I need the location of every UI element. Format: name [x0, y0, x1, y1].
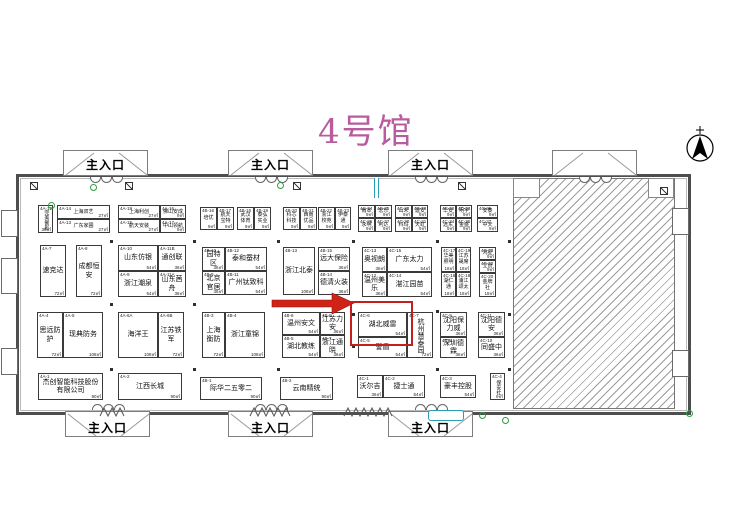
booth-area: 18㎡ — [459, 291, 469, 296]
booth-area: 9㎡ — [496, 394, 503, 399]
booth-area: 9㎡ — [308, 224, 315, 229]
booth-4A-6A: 4A-6A海洋王108㎡ — [118, 312, 158, 358]
booth-area: 9㎡ — [489, 226, 496, 231]
column-marker — [508, 240, 511, 243]
booth-4B-9: 4B-9北京官居36㎡ — [202, 271, 225, 295]
booth-area: 72㎡ — [213, 352, 223, 357]
booth-4B-5: 4B-5湖北教练54㎡ — [282, 335, 320, 358]
booth-area: 9㎡ — [342, 224, 349, 229]
booth-area: 27㎡ — [98, 227, 108, 232]
main-entrance-top: 主入口 — [228, 150, 313, 176]
booth-area: 9㎡ — [403, 212, 410, 217]
booth-4C-1: 4C-1沃尔吉36㎡ — [357, 375, 383, 398]
booth-4C-34: 4C-34远东9㎡ — [440, 218, 456, 232]
entrance-label: 主入口 — [64, 156, 147, 173]
booth-area: 36㎡ — [174, 265, 184, 270]
booth-4B-21: 4B-21西南优品9㎡ — [300, 207, 317, 230]
booth-4C-12: 4C-12温州美乐36㎡ — [362, 272, 387, 297]
hall-title: 4号馆 — [318, 104, 414, 153]
booth-name: 浙江北泰 — [284, 248, 314, 294]
booth-area: 9㎡ — [366, 226, 373, 231]
booth-4B-13: 4B-13浙江北泰108㎡ — [283, 247, 315, 295]
booth-4C-29: 4C-29建安9㎡ — [412, 205, 428, 218]
booth-area: 108㎡ — [144, 352, 156, 357]
booth-area: 27㎡ — [148, 227, 158, 232]
booth-4C-18: 4C-18浦江颂太18㎡ — [456, 272, 471, 297]
booth-4A-5: 4A-5现典防务108㎡ — [63, 312, 103, 358]
booth-4B-16: 4B-16培优9㎡ — [200, 207, 217, 230]
booth-area: 36㎡ — [333, 329, 343, 334]
booth-4A-15: 4A-15航天安装27㎡ — [118, 219, 160, 233]
column-marker — [277, 240, 280, 243]
booth-area: 36㎡ — [174, 291, 184, 296]
door-swing-arc — [415, 404, 426, 410]
booth-area: 9㎡ — [403, 226, 410, 231]
booth-area: 9㎡ — [419, 226, 426, 231]
booth-4A-6B: 4A-6B江苏铁军72㎡ — [158, 312, 184, 358]
camera-icon — [30, 182, 38, 190]
booth-area: 9㎡ — [225, 224, 232, 229]
column-marker — [352, 240, 355, 243]
stair-symbols — [96, 406, 406, 418]
booth-area: 36㎡ — [371, 392, 381, 397]
booth-area: 54㎡ — [255, 265, 265, 270]
column-marker — [110, 368, 113, 371]
duct-mark — [374, 178, 379, 198]
utility-dot — [502, 417, 509, 424]
booth-4B-10: 4B-10园特区36㎡ — [202, 247, 225, 271]
utility-dot — [90, 184, 97, 191]
booth-name: 思远防护 — [38, 313, 62, 357]
booth-4A-11B: 4A-11B通创联36㎡ — [158, 245, 186, 271]
column-marker — [436, 368, 439, 371]
booth-4C-13: 4C-13奥视朗36㎡ — [362, 247, 387, 272]
booth-4C-33: 4C-33明宇9㎡ — [456, 205, 472, 218]
booth-4C-10: 4C-10同盛中36㎡ — [478, 337, 505, 358]
booth-area: 72㎡ — [51, 352, 61, 357]
booth-area: 9㎡ — [489, 212, 496, 217]
booth-4C-17: 4C-17华美照明18㎡ — [441, 247, 456, 272]
booth-area: 27㎡ — [98, 213, 108, 218]
booth-area: 54㎡ — [420, 291, 430, 296]
booth-area: 9㎡ — [447, 212, 454, 217]
booth-4A-4: 4A-4思远防护72㎡ — [37, 312, 63, 358]
booth-area: 90㎡ — [170, 394, 180, 399]
booth-4C-27: 4C-27利达9㎡ — [375, 218, 392, 232]
booth-area: 18㎡ — [459, 266, 469, 271]
column-marker — [436, 240, 439, 243]
booth-area: 9㎡ — [383, 226, 390, 231]
booth-area: 9㎡ — [208, 224, 215, 229]
booth-area: 9㎡ — [245, 224, 252, 229]
booth-4C-37: 4C-37中天9㎡ — [477, 218, 498, 232]
utility-dot — [277, 182, 284, 189]
entrance-label: 主入口 — [229, 156, 312, 173]
entrance-label: 主入口 — [66, 419, 149, 436]
booth-area: 72㎡ — [172, 352, 182, 357]
floor-plan: 4号馆 主入口 主入口 主入口 主入口 主入口 主入口 4A-12完美餐 — [0, 0, 750, 530]
booth-4B-20: 4B-20科芯科技9㎡ — [283, 207, 300, 230]
booth-4A-13: 4A-13广东家圃27㎡ — [57, 219, 110, 233]
booth-area: 36㎡ — [493, 331, 503, 336]
booth-area: 18㎡ — [484, 291, 494, 296]
booth-area: 72㎡ — [421, 352, 431, 357]
column-marker — [277, 368, 280, 371]
side-door — [1, 258, 18, 294]
booth-4B-4: 4B-4浙江童锦108㎡ — [225, 312, 265, 358]
booth-4C-22: 4C-22立创9㎡ — [479, 260, 496, 273]
booth-area: 90㎡ — [91, 394, 101, 399]
booth-4A-11A: 4A-11A山东茜舟36㎡ — [158, 271, 186, 297]
booth-4C-26: 4C-26永明9㎡ — [358, 218, 375, 232]
booth-area: 36㎡ — [375, 291, 385, 296]
column-marker — [436, 310, 439, 313]
entrance-diagonals — [553, 151, 638, 177]
booth-area: 9㎡ — [419, 212, 426, 217]
main-entrance-top: 主入口 — [388, 150, 473, 176]
utility-dot — [48, 202, 55, 209]
highlight-box — [350, 301, 413, 346]
booth-name: 成都恒安 — [77, 246, 101, 296]
column-marker — [193, 240, 196, 243]
column-marker — [110, 240, 113, 243]
main-entrance-top — [552, 150, 637, 176]
booth-area: 36㎡ — [213, 265, 223, 270]
booth-area: 108㎡ — [89, 352, 101, 357]
booth-area: 27㎡ — [148, 213, 158, 218]
booth-4C-8: 4C-8深圳德霖36㎡ — [440, 337, 467, 358]
booth-4C-9: 4C-9沈阳保力威36㎡ — [440, 312, 467, 337]
column-marker — [193, 303, 196, 306]
booth-4A-14: 4A-14上海双艺27㎡ — [57, 205, 110, 219]
booth-4A-12: 4A-12完美餐影36㎡ — [38, 205, 53, 233]
reserved-hatched-area — [513, 178, 675, 409]
booth-area: 54㎡ — [146, 265, 156, 270]
booth-area: 36㎡ — [455, 331, 465, 336]
utility-dot — [686, 410, 693, 417]
booth-4A-7: 4A-7速克达72㎡ — [40, 245, 66, 297]
booth-4A-17: 4A-17中山领航9㎡ — [160, 219, 186, 233]
booth-4C-14: 4C-14湛江园苗54㎡ — [387, 272, 432, 297]
booth-4C-15: 4C-15广东太力54㎡ — [387, 247, 432, 272]
booth-4A-10: 4A-10山东仿银54㎡ — [118, 245, 158, 271]
booth-area: 36㎡ — [41, 227, 51, 232]
camera-icon — [458, 182, 466, 190]
entrance-label: 主入口 — [389, 156, 472, 173]
booth-name: 江苏铁军 — [159, 313, 183, 357]
booth-4B-19: 4B-19泰弘实业9㎡ — [254, 207, 271, 230]
booth-area: 9㎡ — [291, 224, 298, 229]
side-door — [672, 208, 689, 235]
side-door — [1, 210, 18, 237]
column-marker — [508, 368, 511, 371]
booth-area: 9㎡ — [177, 213, 184, 218]
main-entrance-top: 主入口 — [63, 150, 148, 176]
column-marker — [110, 303, 113, 306]
booth-area: 90㎡ — [250, 394, 260, 399]
booth-name: 上海衡防 — [203, 313, 224, 357]
booth-area: 54㎡ — [413, 392, 423, 397]
camera-icon — [293, 182, 301, 190]
booth-area: 72㎡ — [90, 291, 100, 296]
booth-area: 18㎡ — [444, 266, 454, 271]
entrance-label: 主入口 — [229, 419, 312, 436]
booth-4C-24: 4C-24雨本9㎡ — [358, 205, 375, 218]
booth-area: 36㎡ — [493, 352, 503, 357]
north-arrow-icon — [681, 122, 723, 168]
booth-4B-1: 4B-1际华二五零二90㎡ — [200, 377, 262, 400]
booth-area: 9㎡ — [177, 227, 184, 232]
booth-area: 54㎡ — [146, 291, 156, 296]
entrance-label: 主入口 — [389, 419, 472, 436]
booth-4B-11: 4B-11广州钛致科54㎡ — [225, 271, 267, 295]
booth-name: 浙江童锦 — [226, 313, 264, 357]
booth-4C-19: 4C-19江苏晟席18㎡ — [456, 247, 471, 272]
column-marker — [508, 313, 511, 316]
booth-area: 9㎡ — [447, 226, 454, 231]
booth-4B-15: 4B-15远大保险36㎡ — [318, 247, 350, 271]
booth-4C-35: 4C-35金盛9㎡ — [456, 218, 472, 232]
booth-area: 9㎡ — [463, 226, 470, 231]
booth-area: 36㎡ — [213, 289, 223, 294]
camera-icon — [125, 182, 133, 190]
booth-area: 90㎡ — [321, 394, 331, 399]
camera-icon — [660, 187, 668, 195]
side-door — [672, 350, 689, 377]
booth-4A-16: 4A-16佛山安成9㎡ — [160, 205, 186, 219]
booth-area: 54㎡ — [464, 392, 474, 397]
booth-area: 54㎡ — [308, 352, 318, 357]
booth-4B-22: 4B-22浙江校苑9㎡ — [318, 207, 335, 230]
booth-area: 9㎡ — [366, 212, 373, 217]
booth-4B-3: 4B-3上海衡防72㎡ — [202, 312, 225, 358]
hatch-notch — [513, 178, 540, 198]
booth-area: 9㎡ — [487, 254, 494, 259]
booth-name: 速克达 — [41, 246, 65, 296]
booth-area: 108㎡ — [251, 352, 263, 357]
booth-4A-8: 4A-8成都恒安72㎡ — [76, 245, 102, 297]
booth-area: 54㎡ — [255, 289, 265, 294]
booth-4B-23: 4B-23伊泰通9㎡ — [335, 207, 351, 230]
booth-area: 36㎡ — [338, 265, 348, 270]
booth-area: 9㎡ — [326, 224, 333, 229]
booth-4A-18: 4A-18上海利创27㎡ — [118, 205, 160, 219]
booth-4C-31: 4C-31天虹9㎡ — [412, 218, 428, 232]
booth-4C-4: 4C-4保安社9㎡ — [490, 373, 505, 400]
booth-4C-11: 4C-11沈阳德安36㎡ — [478, 312, 505, 337]
booth-area: 9㎡ — [487, 267, 494, 272]
booth-4A-2: 4A-2江西长城90㎡ — [118, 373, 182, 400]
booth-area: 36㎡ — [333, 352, 343, 357]
highlight-arrow — [270, 291, 356, 319]
booth-name: 海洋王 — [119, 313, 157, 357]
booth-4B-17: 4B-17航天宝特9㎡ — [217, 207, 234, 230]
utility-dot — [479, 412, 486, 419]
booth-area: 72㎡ — [54, 291, 64, 296]
utility-box — [428, 410, 464, 421]
booth-area: 36㎡ — [455, 352, 465, 357]
booth-4C-36: 4C-36安泰9㎡ — [477, 205, 498, 218]
booth-area: 54㎡ — [395, 352, 405, 357]
booth-4A-1: 4A-1杰创智能科技股份有限公司90㎡ — [38, 373, 103, 400]
booth-4B-18: 4B-18武汉体育9㎡ — [237, 207, 254, 230]
booth-4B-2: 4B-2云南精统90㎡ — [280, 377, 333, 400]
booth-4A-9: 4A-9浙江潮泉54㎡ — [118, 271, 158, 297]
booth-4C-32: 4C-32华安9㎡ — [440, 205, 456, 218]
booth-area: 36㎡ — [375, 266, 385, 271]
side-door — [1, 348, 18, 375]
booth-name: 现典防务 — [64, 313, 102, 357]
booth-area: 9㎡ — [383, 212, 390, 217]
booth-4C-23: 4C-23鸿星9㎡ — [479, 247, 496, 260]
booth-4C-20: 4C-20金牌社18㎡ — [479, 273, 496, 297]
booth-4C-28: 4C-28山禾9㎡ — [395, 205, 412, 218]
booth-4B-12: 4B-12泰和蚕材54㎡ — [225, 247, 267, 271]
booth-4C-30: 4C-30科玛9㎡ — [395, 218, 412, 232]
booth-area: 54㎡ — [308, 329, 318, 334]
booth-4C-3: 4C-3豪丰控股54㎡ — [440, 375, 476, 398]
booth-area: 18㎡ — [444, 291, 454, 296]
column-marker — [193, 368, 196, 371]
booth-4C-16: 4C-16湖仁通18㎡ — [441, 272, 456, 297]
booth-area: 54㎡ — [420, 266, 430, 271]
booth-area: 9㎡ — [463, 212, 470, 217]
booth-4C-2: 4C-2捷士通54㎡ — [383, 375, 425, 398]
booth-4B-7: 4B-7浙江通晓36㎡ — [320, 335, 345, 358]
booth-area: 9㎡ — [262, 224, 269, 229]
booth-4C-25: 4C-25宏乐9㎡ — [375, 205, 392, 218]
